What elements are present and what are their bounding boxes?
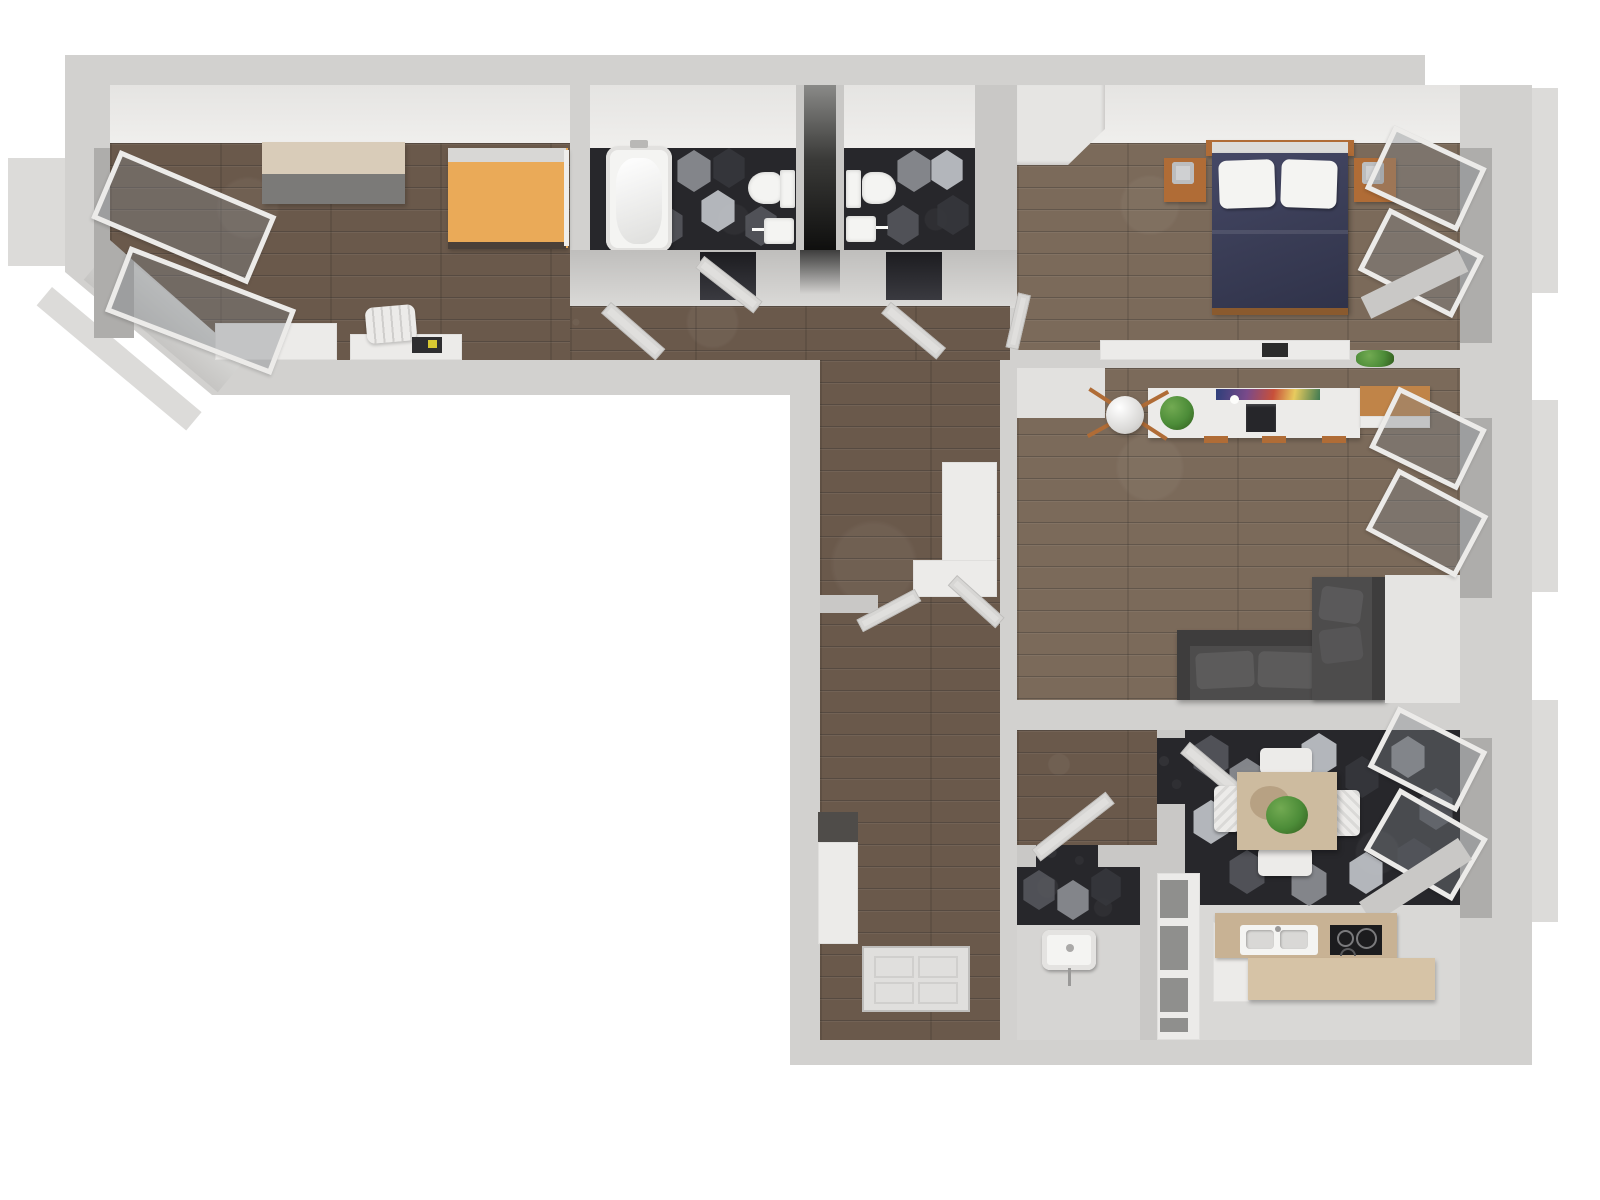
camera: [1262, 343, 1288, 357]
bedroom-shelf: [1100, 340, 1350, 360]
orange-bed-pillow: [448, 148, 566, 162]
monitor: [1246, 404, 1276, 432]
orange-bed-mattress-edge: [564, 150, 569, 246]
hall-wardrobe: [818, 842, 858, 944]
dining-plant: [1266, 796, 1308, 834]
wc-toilet-tank: [846, 170, 861, 208]
shelf-slot: [1160, 926, 1188, 970]
desk-chair: [365, 304, 418, 344]
table-lamp-left: [1172, 162, 1194, 184]
corner-sofa-armrest: [1177, 630, 1190, 700]
bed-duvet-fold: [1212, 230, 1348, 234]
small-bath-faucet-pipe: [1068, 968, 1071, 986]
hallway-lobby-floor: [1017, 730, 1157, 845]
bathroom-washbasin: [764, 218, 794, 244]
laptop-screen: [428, 340, 437, 348]
wc-washbasin-faucet: [876, 226, 888, 229]
console-chair-seat: [1262, 436, 1286, 443]
wc-toilet-bowl: [862, 172, 896, 204]
sideboard: [262, 142, 405, 204]
console-chair-seat: [1322, 436, 1346, 443]
entry-door-panel: [874, 956, 914, 978]
entry-door: [862, 946, 970, 1012]
office-doorway: [570, 306, 590, 360]
dining-chair: [1258, 848, 1312, 876]
orange-bed: [448, 148, 568, 248]
bathtub-basin: [616, 158, 662, 244]
bed-footboard: [1212, 308, 1348, 315]
orange-bed-footboard: [448, 242, 566, 249]
wc-north-wall-face: [844, 85, 975, 150]
bedroom-office-north-wall-face: [110, 85, 570, 145]
hall-cabinet-upper: [942, 462, 997, 562]
exterior-sill-left: [8, 158, 66, 266]
bathroom-block-front-face: [570, 250, 1017, 308]
exterior-sill-right-top: [1530, 88, 1558, 293]
kitchen-sink-basin: [1280, 930, 1308, 949]
sofa-cushion: [1257, 651, 1316, 689]
bathroom-east-wall: [796, 85, 804, 250]
cooktop-burner: [1356, 928, 1377, 949]
kitchen-sink-basin: [1246, 930, 1274, 949]
bathtub-faucet: [630, 140, 648, 148]
wc-bedroom-wall: [975, 85, 1017, 250]
exterior-sill-right-mid: [1530, 400, 1558, 592]
bed-mattress-top: [1212, 142, 1348, 153]
exterior-sill-right-bottom: [1530, 700, 1558, 922]
bathroom-north-wall-face: [590, 85, 796, 150]
console-speaker-dot: [1230, 395, 1239, 404]
console-plant: [1160, 396, 1194, 430]
hall-locker-dark: [818, 812, 858, 842]
entry-door-panel: [918, 956, 958, 978]
dining-doorway: [1157, 738, 1185, 804]
bathroom-toilet-bowl: [748, 172, 782, 204]
wc-doorway: [886, 252, 942, 300]
shelf-slot: [1160, 978, 1188, 1012]
shelf-slot: [1160, 880, 1188, 918]
sofa-pillow: [1318, 585, 1364, 625]
bathroom-toilet-tank: [780, 170, 795, 208]
floorplan-canvas: [0, 0, 1600, 1200]
entry-door-panel: [918, 982, 958, 1004]
bed-pillow: [1218, 159, 1276, 209]
kitchen-sink-faucet: [1275, 926, 1281, 932]
bed-pillow: [1280, 159, 1338, 209]
sofa-cushion: [1195, 651, 1255, 690]
corner-sofa-chaise-back: [1372, 577, 1385, 700]
console-chair-seat: [1204, 436, 1228, 443]
living-wall-block: [1385, 575, 1460, 703]
bathroom-washbasin-faucet: [752, 228, 764, 231]
shaft-shadow: [800, 250, 840, 294]
floor-lamp-globe: [1106, 396, 1144, 434]
wc-west-wall: [836, 85, 844, 250]
light-shaft: [804, 85, 836, 250]
entry-door-panel: [874, 982, 914, 1004]
bedroom-plant: [1356, 350, 1394, 367]
shelf-slot: [1160, 1018, 1188, 1032]
dining-chair: [1260, 748, 1312, 774]
small-bath-faucet-dot: [1066, 944, 1074, 952]
small-bath-east-wall: [1140, 845, 1157, 1040]
hallway-wall-stub: [820, 595, 878, 613]
cooktop-burner: [1337, 930, 1354, 947]
sofa-pillow: [1318, 626, 1364, 665]
laptop: [412, 337, 442, 353]
wc-washbasin: [846, 216, 876, 242]
kitchen-island-counter: [1248, 958, 1435, 1000]
